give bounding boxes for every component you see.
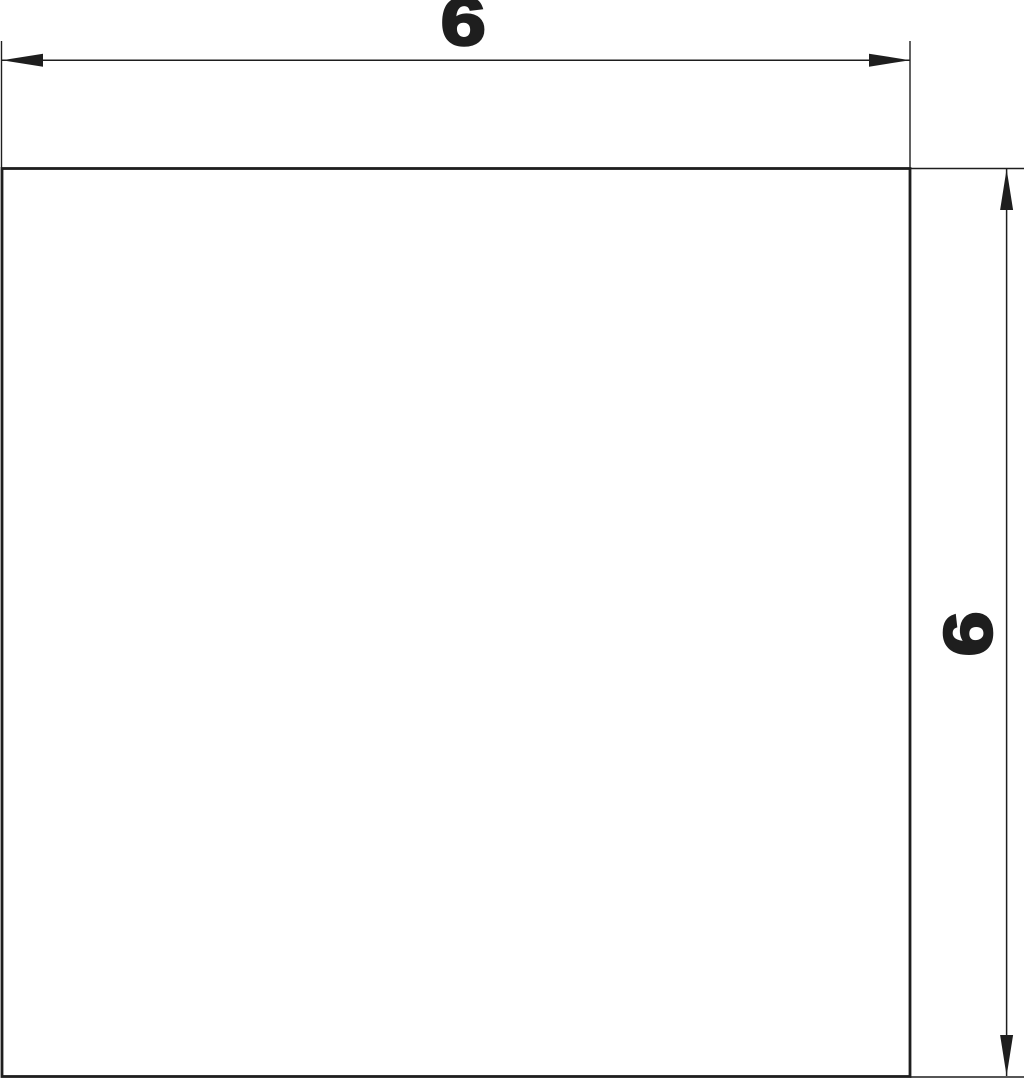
svg-text:6: 6 [931, 611, 1006, 656]
svg-text:6: 6 [441, 0, 486, 60]
